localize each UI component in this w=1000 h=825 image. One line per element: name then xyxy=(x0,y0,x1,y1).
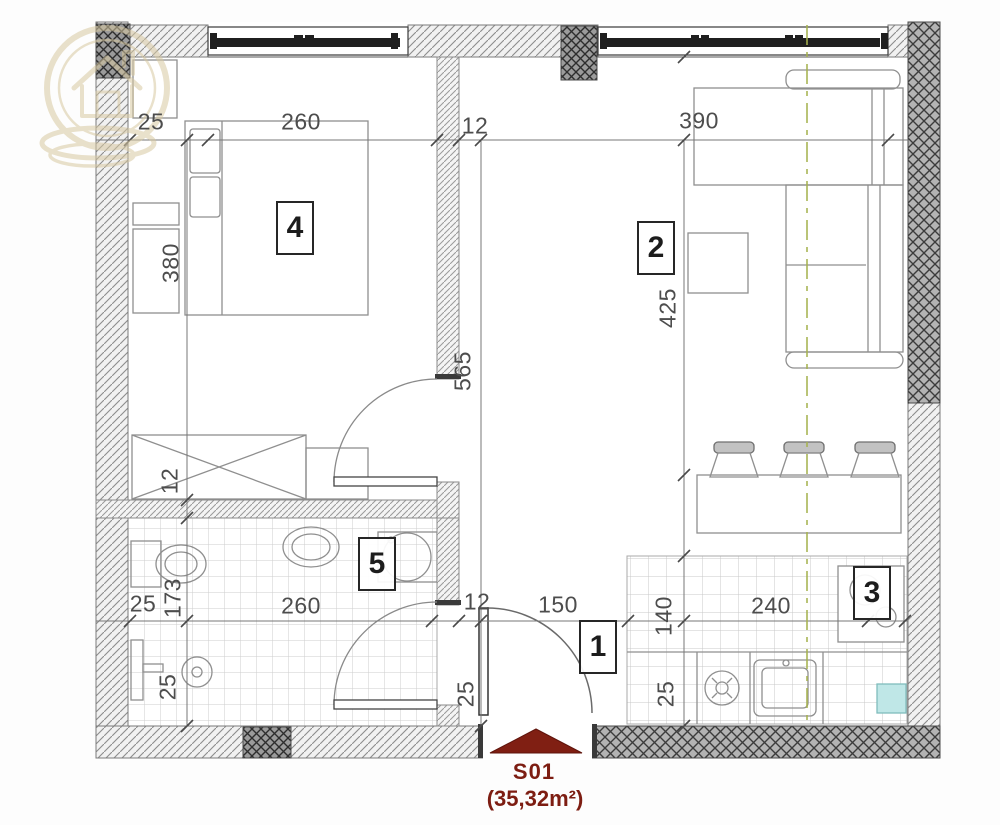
dimension-label: 260 xyxy=(281,593,321,620)
window-living xyxy=(598,27,888,57)
room-number-4: 4 xyxy=(276,201,314,255)
dimension-label: 12 xyxy=(464,589,491,616)
window-bedroom xyxy=(208,27,408,57)
room-number-2: 2 xyxy=(637,221,675,275)
dimension-label: 25 xyxy=(155,674,182,701)
room-number-1: 1 xyxy=(579,620,617,674)
dimension-label: 425 xyxy=(655,288,682,328)
dimension-label: 565 xyxy=(450,351,477,391)
room-number-5: 5 xyxy=(358,537,396,591)
dimension-label: 260 xyxy=(281,109,321,136)
unit-area-label: (35,32m²) xyxy=(487,786,584,812)
fridge-highlight xyxy=(877,684,906,713)
dimension-label: 25 xyxy=(130,591,157,618)
dimension-label: 25 xyxy=(653,681,680,708)
dimension-label: 173 xyxy=(160,578,187,618)
dimension-label: 380 xyxy=(158,243,185,283)
dimension-label: 140 xyxy=(651,596,678,636)
dimension-label: 12 xyxy=(462,113,489,140)
dimension-label: 12 xyxy=(157,468,184,495)
unit-code-label: S01 xyxy=(513,759,555,785)
room-number-3: 3 xyxy=(853,566,891,620)
dimension-label: 25 xyxy=(138,109,165,136)
dimension-label: 390 xyxy=(679,108,719,135)
dimension-label: 150 xyxy=(538,592,578,619)
dimension-label: 25 xyxy=(453,681,480,708)
floor-plan: 25 260 12 390 380 12 173 25 25 565 425 2… xyxy=(0,0,1000,825)
dimension-label: 240 xyxy=(751,593,791,620)
